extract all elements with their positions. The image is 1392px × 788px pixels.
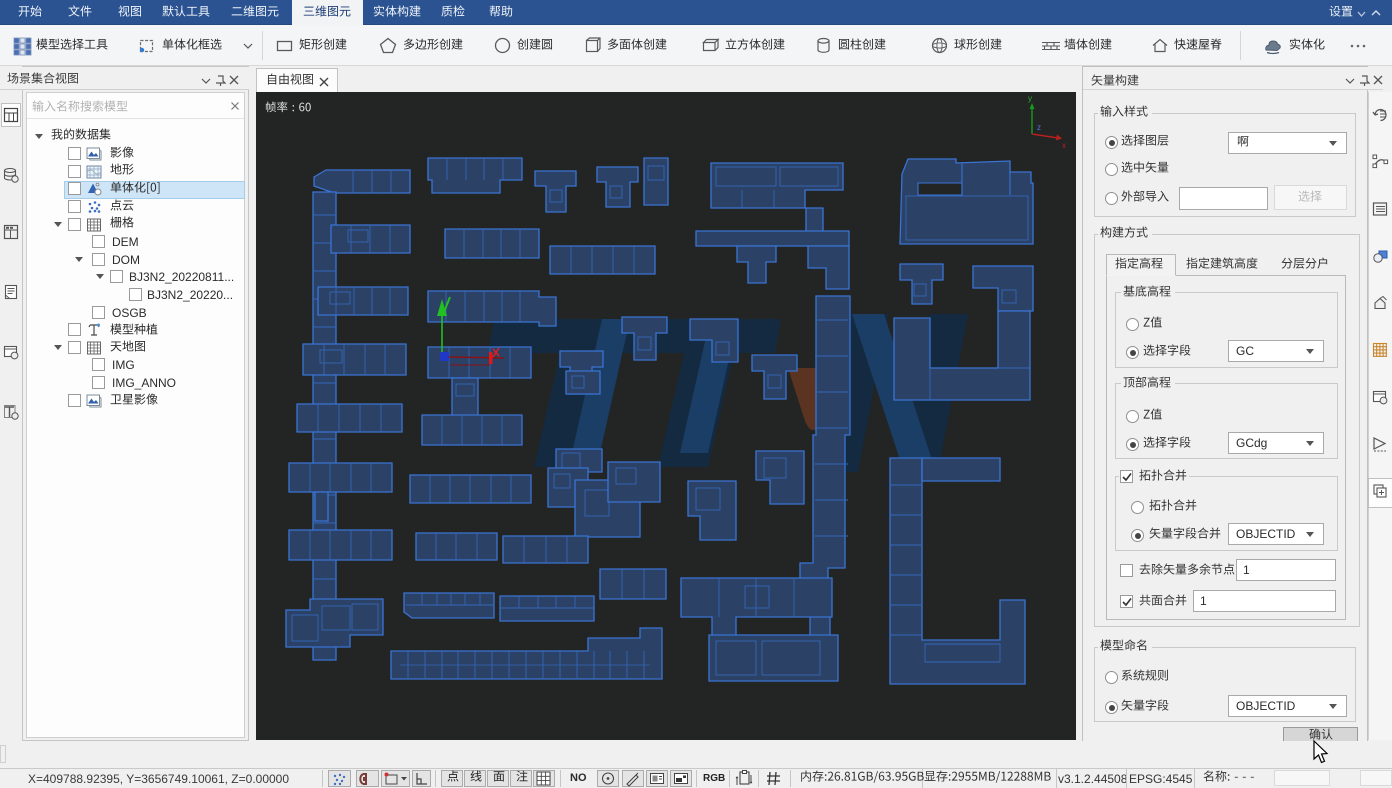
svg-text:y: y: [1028, 94, 1032, 103]
svg-text:z: z: [1037, 123, 1041, 132]
svg-text:x: x: [1062, 141, 1066, 150]
